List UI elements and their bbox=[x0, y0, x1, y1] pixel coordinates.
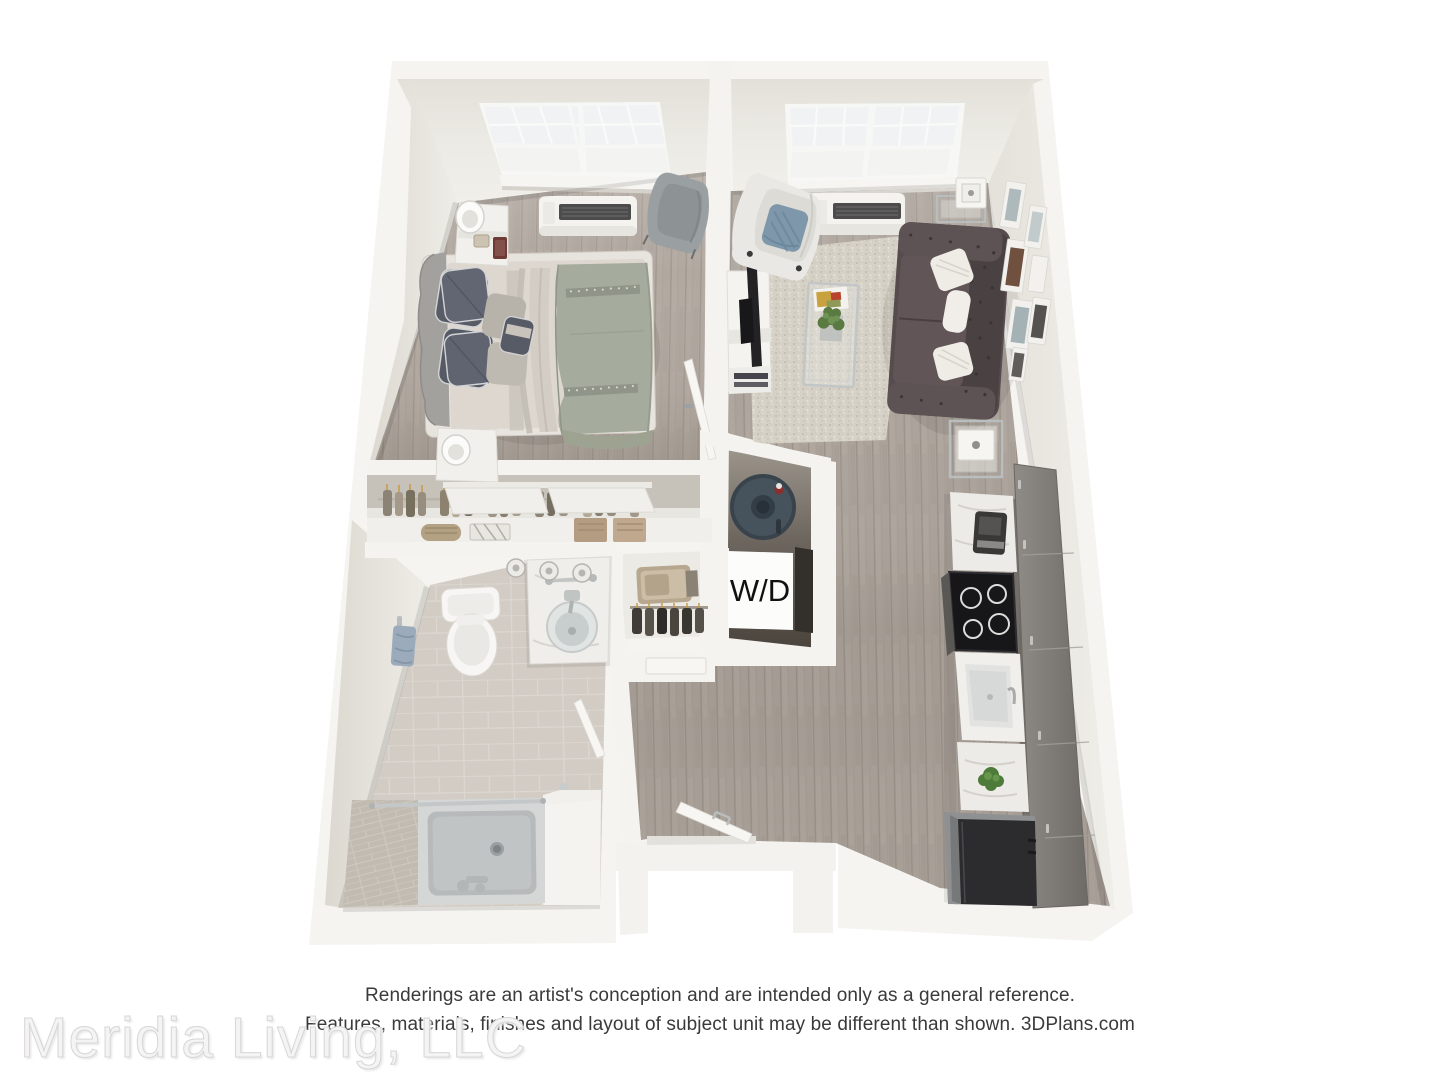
svg-text:W/D: W/D bbox=[730, 573, 790, 608]
